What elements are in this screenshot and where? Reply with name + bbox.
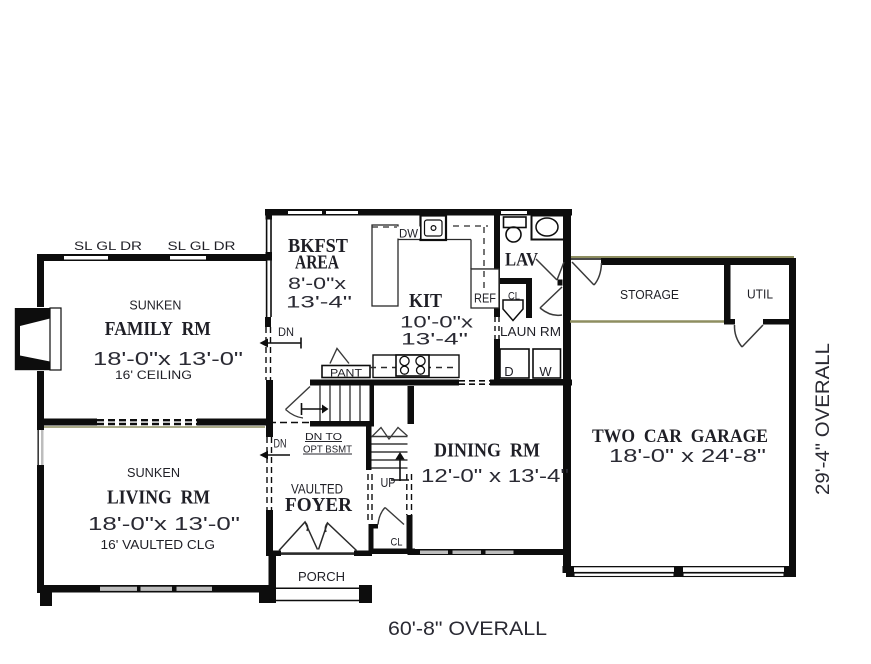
svg-text:W: W	[539, 364, 552, 379]
svg-text:60'-8" OVERALL: 60'-8" OVERALL	[388, 619, 547, 640]
svg-text:SUNKEN: SUNKEN	[127, 466, 180, 480]
svg-text:FAMILY RM: FAMILY RM	[105, 318, 211, 340]
svg-text:UP: UP	[381, 476, 396, 490]
svg-text:18'-0"x 13'-0": 18'-0"x 13'-0"	[93, 348, 243, 369]
svg-text:SL GL DR: SL GL DR	[74, 239, 142, 253]
svg-text:AREA: AREA	[295, 252, 339, 274]
svg-text:TWO CAR GARAGE: TWO CAR GARAGE	[592, 426, 768, 447]
svg-text:18'-0"x 13'-0": 18'-0"x 13'-0"	[88, 513, 240, 534]
svg-text:KIT: KIT	[409, 290, 443, 312]
svg-text:LAUN RM: LAUN RM	[500, 324, 561, 339]
svg-text:13'-4": 13'-4"	[401, 330, 468, 349]
svg-text:UTIL: UTIL	[747, 287, 773, 302]
svg-text:16' CEILING: 16' CEILING	[115, 368, 192, 382]
svg-text:D: D	[504, 364, 513, 379]
svg-text:18'-0" x 24'-8": 18'-0" x 24'-8"	[609, 446, 766, 466]
svg-text:PORCH: PORCH	[298, 569, 345, 584]
svg-text:13'-4": 13'-4"	[286, 293, 352, 312]
svg-text:LAV: LAV	[505, 250, 538, 271]
svg-text:DN: DN	[278, 325, 294, 339]
svg-text:CL: CL	[391, 537, 403, 549]
svg-text:LIVING RM: LIVING RM	[107, 487, 210, 509]
svg-text:12'-0" x 13'-4": 12'-0" x 13'-4"	[421, 466, 569, 486]
svg-text:CL: CL	[508, 291, 520, 303]
svg-text:PANT: PANT	[330, 368, 362, 380]
svg-text:8'-0"x: 8'-0"x	[288, 274, 347, 293]
svg-text:SUNKEN: SUNKEN	[129, 299, 181, 313]
svg-text:16' VAULTED CLG: 16' VAULTED CLG	[101, 538, 216, 552]
svg-text:REF: REF	[474, 291, 496, 306]
svg-text:29'-4" OVERALL: 29'-4" OVERALL	[813, 343, 834, 495]
svg-text:STORAGE: STORAGE	[620, 287, 679, 302]
svg-text:DINING RM: DINING RM	[434, 440, 540, 462]
svg-text:SL GL DR: SL GL DR	[168, 239, 236, 253]
svg-text:DW: DW	[399, 227, 419, 241]
svg-text:FOYER: FOYER	[285, 494, 353, 516]
svg-text:DN: DN	[274, 437, 287, 451]
